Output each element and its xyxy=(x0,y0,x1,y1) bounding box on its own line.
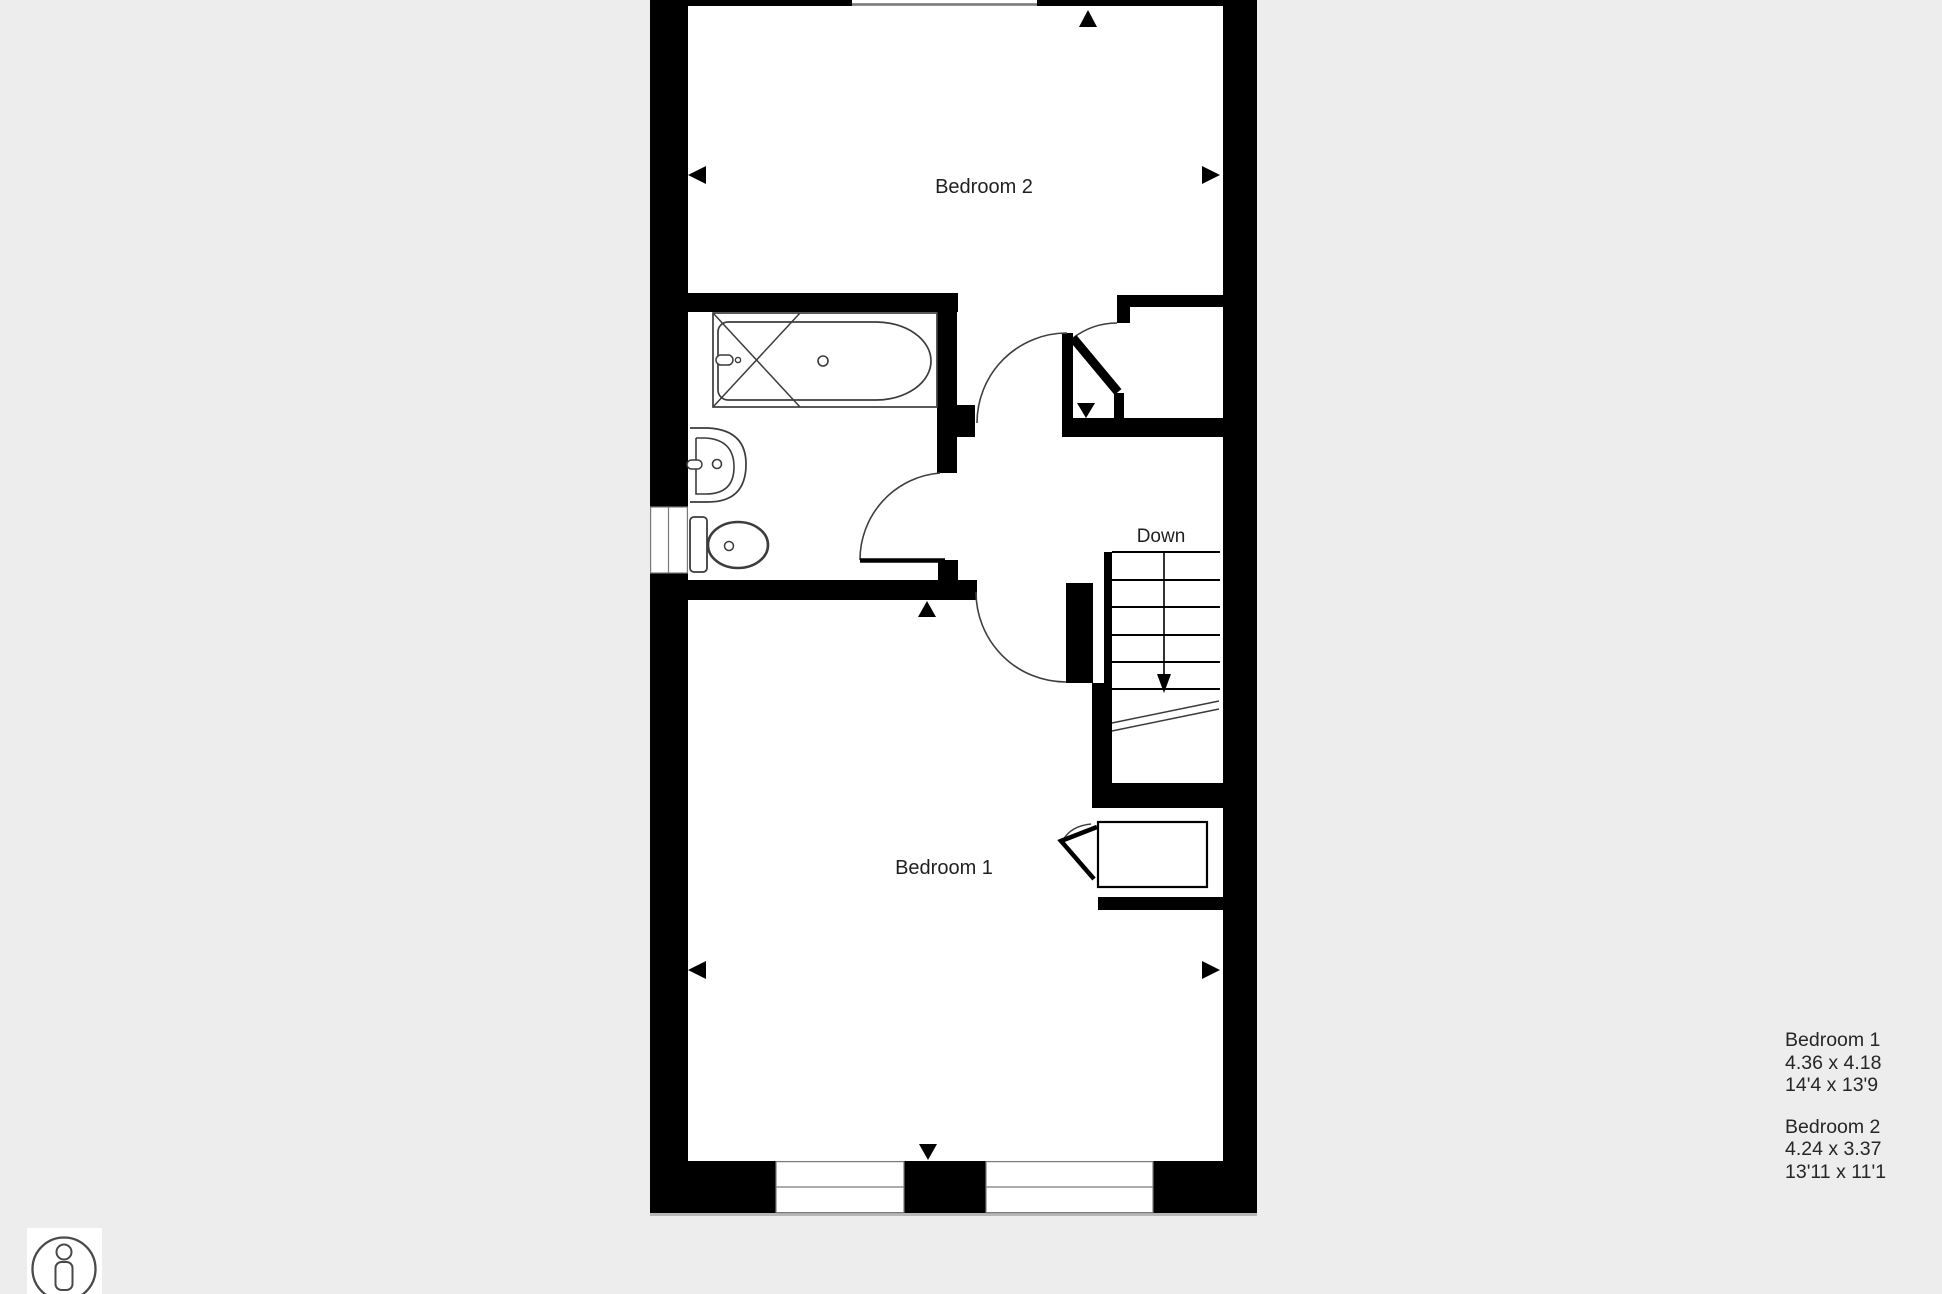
wall-right xyxy=(1223,0,1257,1213)
bedroom2-door-leaf xyxy=(1062,333,1073,421)
wall-closet-corner xyxy=(1117,307,1130,323)
wall-bedroom1-door-bar xyxy=(1066,583,1093,683)
wall-bottom xyxy=(650,1161,1257,1213)
window-bottom-left xyxy=(776,1162,904,1213)
wall-hall-stub xyxy=(955,405,975,437)
wall-bathdoor-stub xyxy=(938,560,958,580)
room-label-bedroom2: Bedroom 2 xyxy=(935,176,1033,199)
window-bottom-right xyxy=(986,1162,1153,1213)
legend-entry-bedroom2: Bedroom 2 4.24 x 3.37 13'11 x 11'1 xyxy=(1785,1116,1886,1184)
window-left xyxy=(651,507,688,573)
wall-stair-bottom xyxy=(1092,783,1223,808)
legend-entry-bedroom1: Bedroom 1 4.36 x 4.18 14'4 x 13'9 xyxy=(1785,1029,1886,1097)
toilet-icon xyxy=(690,517,768,572)
wall-top-right xyxy=(1037,0,1223,6)
legend-metric-dimensions: 4.36 x 4.18 xyxy=(1785,1052,1886,1075)
bathtub-icon xyxy=(713,313,937,407)
legend-room-name: Bedroom 2 xyxy=(1785,1116,1886,1139)
dimensions-legend: Bedroom 1 4.36 x 4.18 14'4 x 13'9 Bedroo… xyxy=(1785,1029,1886,1202)
wall-left-upper xyxy=(650,0,688,507)
window-top xyxy=(852,0,1037,6)
wall-stair-west-thin xyxy=(1104,552,1112,683)
stairs-down-label: Down xyxy=(1137,526,1186,548)
floorplan-page: Bedroom 2 Bedroom 1 Down Bedroom 1 4.36 … xyxy=(0,0,1942,1294)
wall-closet-top xyxy=(1117,295,1223,307)
sink-icon xyxy=(687,428,746,502)
wall-bedroom1-top xyxy=(650,580,977,600)
wall-top-left xyxy=(650,0,852,6)
room-label-bedroom1: Bedroom 1 xyxy=(895,857,993,880)
legend-imperial-dimensions: 14'4 x 13'9 xyxy=(1785,1074,1886,1097)
legend-metric-dimensions: 4.24 x 3.37 xyxy=(1785,1138,1886,1161)
wall-landing-bar xyxy=(1062,418,1223,437)
wall-left-lower xyxy=(650,573,688,1213)
wall-bath-divider xyxy=(688,293,958,312)
legend-imperial-dimensions: 13'11 x 11'1 xyxy=(1785,1161,1886,1184)
wall-closet-hinge xyxy=(1114,393,1124,419)
wall-bath-right xyxy=(937,312,957,473)
wall-alcove-bottom xyxy=(1098,897,1223,910)
legend-room-name: Bedroom 1 xyxy=(1785,1029,1886,1052)
person-scale-icon xyxy=(27,1228,102,1294)
